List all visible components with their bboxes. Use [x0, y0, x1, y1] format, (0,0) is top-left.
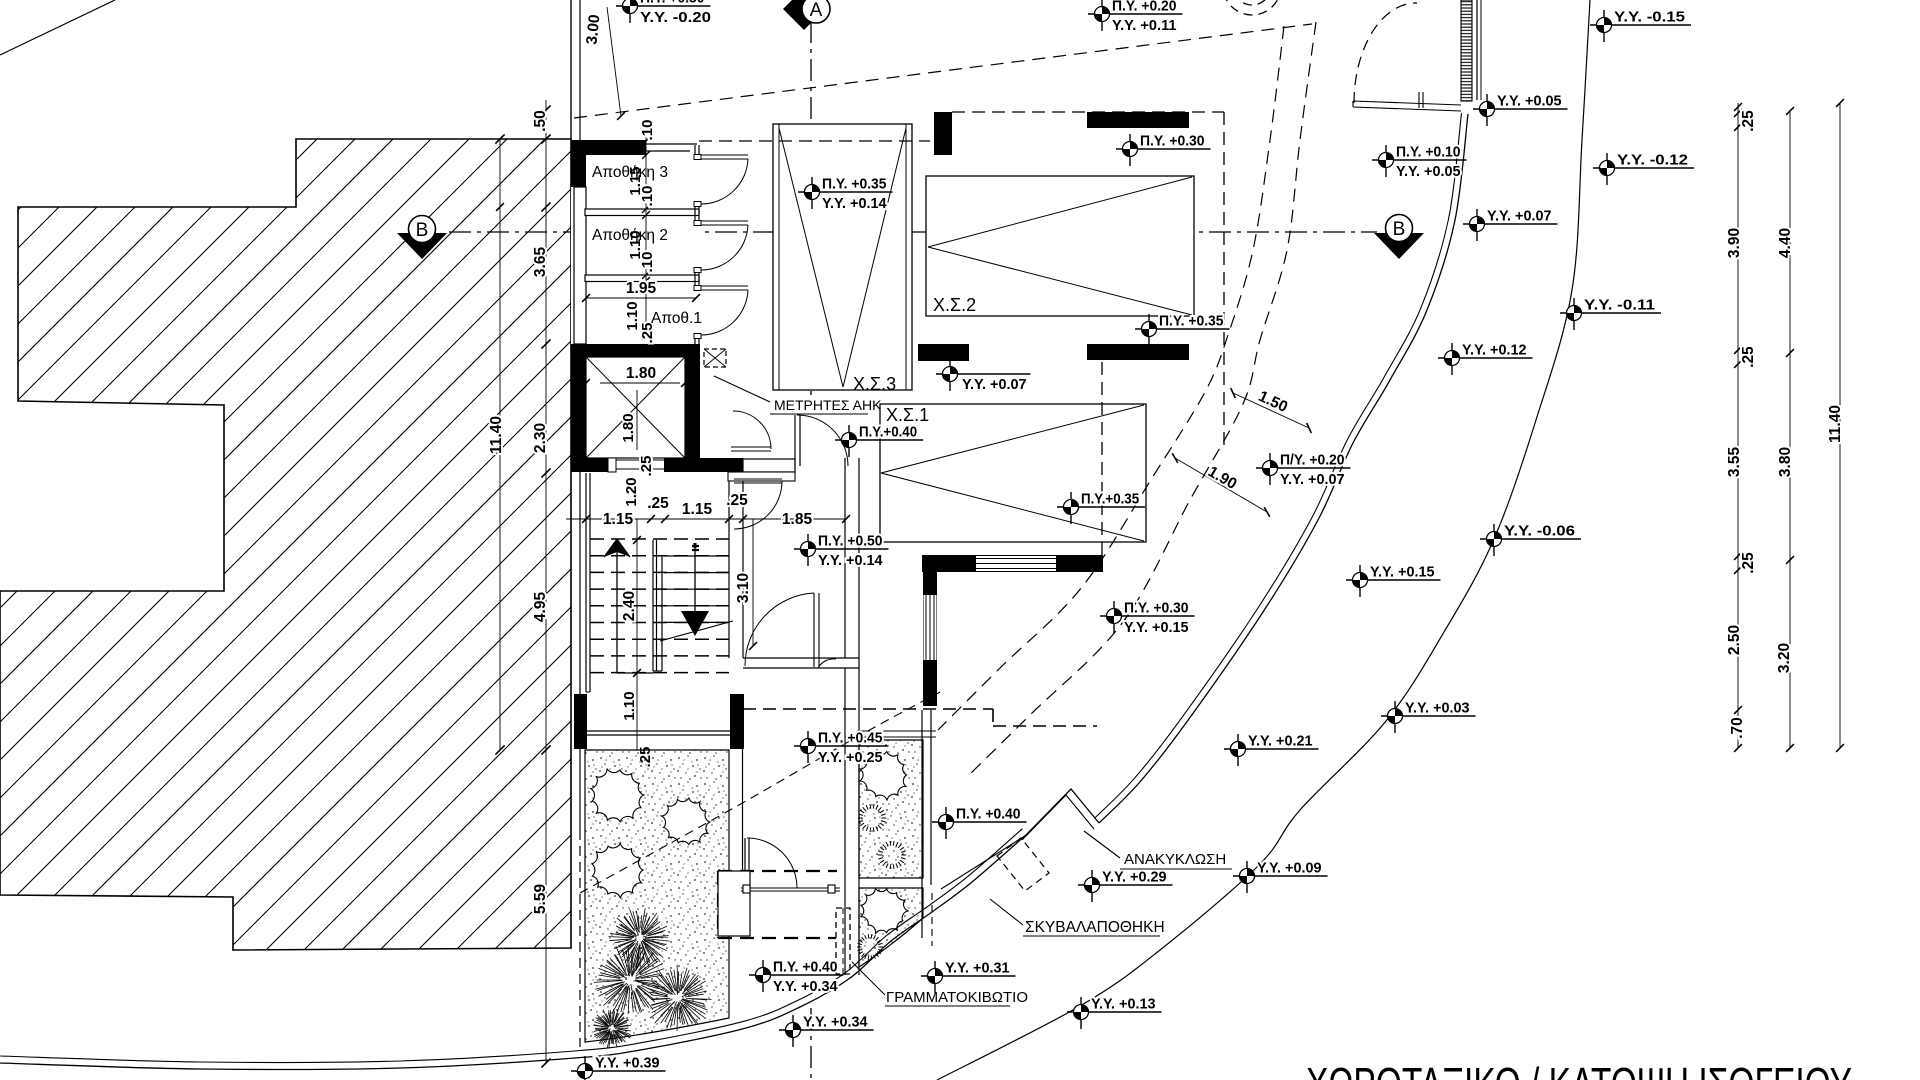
svg-text:Υ.Υ. +0.21: Υ.Υ. +0.21 [1248, 733, 1313, 750]
svg-text:.10: .10 [639, 120, 656, 141]
svg-text:Αποθ.1: Αποθ.1 [651, 310, 702, 327]
svg-text:3.55: 3.55 [1726, 447, 1743, 478]
svg-text:Υ.Υ. -0.15: Υ.Υ. -0.15 [1614, 9, 1686, 26]
svg-text:ΧΩΡΟΤΑΞΙΚΟ / ΚΑΤΟΨΗ ΙΣΟΓΕΙΟΥ: ΧΩΡΟΤΑΞΙΚΟ / ΚΑΤΟΨΗ ΙΣΟΓΕΙΟΥ [1306, 1058, 1852, 1080]
svg-text:B: B [416, 220, 429, 241]
svg-text:.50: .50 [532, 110, 549, 132]
svg-text:1.10: 1.10 [621, 691, 638, 720]
svg-text:4.95: 4.95 [532, 592, 549, 623]
svg-text:Π/Υ. +0.20: Π/Υ. +0.20 [1280, 452, 1345, 469]
svg-text:1.95: 1.95 [626, 280, 657, 297]
svg-text:ΓΡΑΜΜΑΤΟΚΙΒΩΤΙΟ: ΓΡΑΜΜΑΤΟΚΙΒΩΤΙΟ [886, 989, 1028, 1006]
svg-text:Υ.Υ. +0.09: Υ.Υ. +0.09 [1257, 860, 1322, 877]
svg-text:Υ.Υ. +0.05: Υ.Υ. +0.05 [1497, 93, 1562, 110]
svg-text:Υ.Υ. +0.14: Υ.Υ. +0.14 [818, 552, 883, 569]
svg-text:1.80: 1.80 [626, 365, 656, 382]
svg-text:3.65: 3.65 [532, 247, 549, 278]
svg-text:Υ.Υ. +0.25: Υ.Υ. +0.25 [818, 749, 883, 766]
svg-text:Υ.Υ. +0.05: Υ.Υ. +0.05 [1396, 163, 1461, 180]
svg-text:2.40: 2.40 [621, 591, 638, 621]
svg-text:Υ.Υ. +0.39: Υ.Υ. +0.39 [595, 1055, 660, 1072]
svg-text:ΑΝΑΚΥΚΛΩΣΗ: ΑΝΑΚΥΚΛΩΣΗ [1124, 851, 1226, 868]
svg-text:Υ.Υ. +0.12: Υ.Υ. +0.12 [1462, 342, 1527, 359]
svg-text:Υ.Υ. +0.34: Υ.Υ. +0.34 [773, 978, 838, 995]
svg-text:Υ.Υ. -0.06: Υ.Υ. -0.06 [1504, 523, 1575, 540]
svg-text:Υ.Υ. -0.12: Υ.Υ. -0.12 [1617, 152, 1688, 169]
svg-text:Υ.Υ. +0.03: Υ.Υ. +0.03 [1405, 700, 1470, 717]
svg-text:Π.Υ. +0.40: Π.Υ. +0.40 [956, 806, 1021, 823]
svg-text:Χ.Σ.3: Χ.Σ.3 [853, 374, 896, 394]
svg-text:1.15: 1.15 [682, 501, 713, 518]
svg-text:Π.Υ.+0.35: Π.Υ.+0.35 [1081, 491, 1140, 508]
svg-text:Χ.Σ.2: Χ.Σ.2 [933, 295, 976, 315]
svg-text:4.40: 4.40 [1777, 228, 1794, 258]
svg-text:3.00: 3.00 [583, 14, 603, 46]
svg-text:ΜΕΤΡΗΤΕΣ ΑΗΚ: ΜΕΤΡΗΤΕΣ ΑΗΚ [774, 397, 882, 413]
svg-text:Π.Υ. +0.10: Π.Υ. +0.10 [1396, 144, 1461, 161]
svg-text:Υ.Υ. +0.15: Υ.Υ. +0.15 [1124, 619, 1189, 636]
svg-text:3.20: 3.20 [1776, 643, 1793, 673]
svg-text:Υ.Υ. +0.13: Υ.Υ. +0.13 [1091, 996, 1156, 1013]
svg-text:Π.Υ. +0.40: Π.Υ. +0.40 [773, 959, 838, 976]
svg-text:Υ.Υ. +0.34: Υ.Υ. +0.34 [803, 1014, 868, 1031]
svg-text:.10: .10 [639, 186, 656, 207]
svg-text:Υ.Υ. +0.29: Υ.Υ. +0.29 [1102, 869, 1167, 886]
svg-text:Υ.Υ. +0.14: Υ.Υ. +0.14 [822, 195, 887, 212]
svg-text:Π.Υ.+0.40: Π.Υ.+0.40 [859, 424, 917, 441]
svg-text:Υ.Υ. +0.11: Υ.Υ. +0.11 [1112, 17, 1177, 34]
svg-text:.25: .25 [638, 456, 655, 477]
svg-text:11.40: 11.40 [1827, 405, 1844, 443]
svg-text:Αποθήκη 3: Αποθήκη 3 [592, 164, 668, 181]
svg-text:ΣΚΥΒΑΛΑΠΟΘΗΚΗ: ΣΚΥΒΑΛΑΠΟΘΗΚΗ [1025, 919, 1165, 936]
svg-text:Π.Υ. +0.35: Π.Υ. +0.35 [1159, 313, 1224, 330]
svg-text:Υ.Υ. +0.07: Υ.Υ. +0.07 [1280, 471, 1345, 488]
svg-text:Υ.Υ. +0.15: Υ.Υ. +0.15 [1370, 564, 1435, 581]
svg-text:3.80: 3.80 [1777, 447, 1794, 477]
svg-text:3.90: 3.90 [1726, 228, 1743, 258]
svg-text:.10: .10 [639, 252, 656, 273]
svg-text:Π.Υ. +0.50: Π.Υ. +0.50 [640, 0, 705, 7]
svg-text:Π.Υ. +0.30: Π.Υ. +0.30 [1140, 133, 1205, 150]
svg-text:Χ.Σ.1: Χ.Σ.1 [886, 405, 929, 425]
svg-text:Π.Υ. +0.30: Π.Υ. +0.30 [1124, 600, 1189, 617]
svg-text:Π.Υ. +0.50: Π.Υ. +0.50 [818, 533, 883, 550]
svg-text:.70: .70 [1729, 717, 1746, 739]
svg-text:3.10: 3.10 [735, 573, 752, 603]
svg-text:.25: .25 [726, 492, 748, 509]
svg-text:.25: .25 [647, 495, 669, 512]
svg-text:1.15: 1.15 [603, 511, 634, 528]
svg-text:.25: .25 [1740, 346, 1757, 368]
svg-text:Π.Υ. +0.35: Π.Υ. +0.35 [822, 176, 887, 193]
svg-text:2.50: 2.50 [1726, 625, 1743, 655]
svg-text:11.40: 11.40 [488, 416, 505, 454]
svg-text:1.85: 1.85 [782, 511, 813, 528]
svg-text:.25: .25 [1740, 552, 1757, 574]
svg-text:2.30: 2.30 [532, 423, 549, 453]
svg-text:Π.Υ. +0.45: Π.Υ. +0.45 [818, 730, 883, 747]
svg-text:Υ.Υ. -0.11: Υ.Υ. -0.11 [1584, 297, 1656, 314]
svg-text:B: B [1393, 219, 1406, 240]
svg-text:.25: .25 [1740, 110, 1757, 132]
svg-text:Υ.Υ. -0.20: Υ.Υ. -0.20 [640, 9, 711, 26]
svg-text:Υ.Υ. +0.31: Υ.Υ. +0.31 [945, 960, 1010, 977]
svg-text:Αποθήκη 2: Αποθήκη 2 [592, 227, 668, 244]
svg-text:Π.Υ. +0.20: Π.Υ. +0.20 [1112, 0, 1177, 15]
svg-text:1.80: 1.80 [620, 413, 637, 442]
svg-text:1.20: 1.20 [623, 477, 640, 506]
svg-text:Υ.Υ. +0.07: Υ.Υ. +0.07 [1487, 208, 1552, 225]
svg-text:Υ.Υ. +0.07: Υ.Υ. +0.07 [962, 376, 1027, 393]
svg-text:A: A [810, 0, 823, 21]
svg-text:5.59: 5.59 [532, 884, 549, 915]
